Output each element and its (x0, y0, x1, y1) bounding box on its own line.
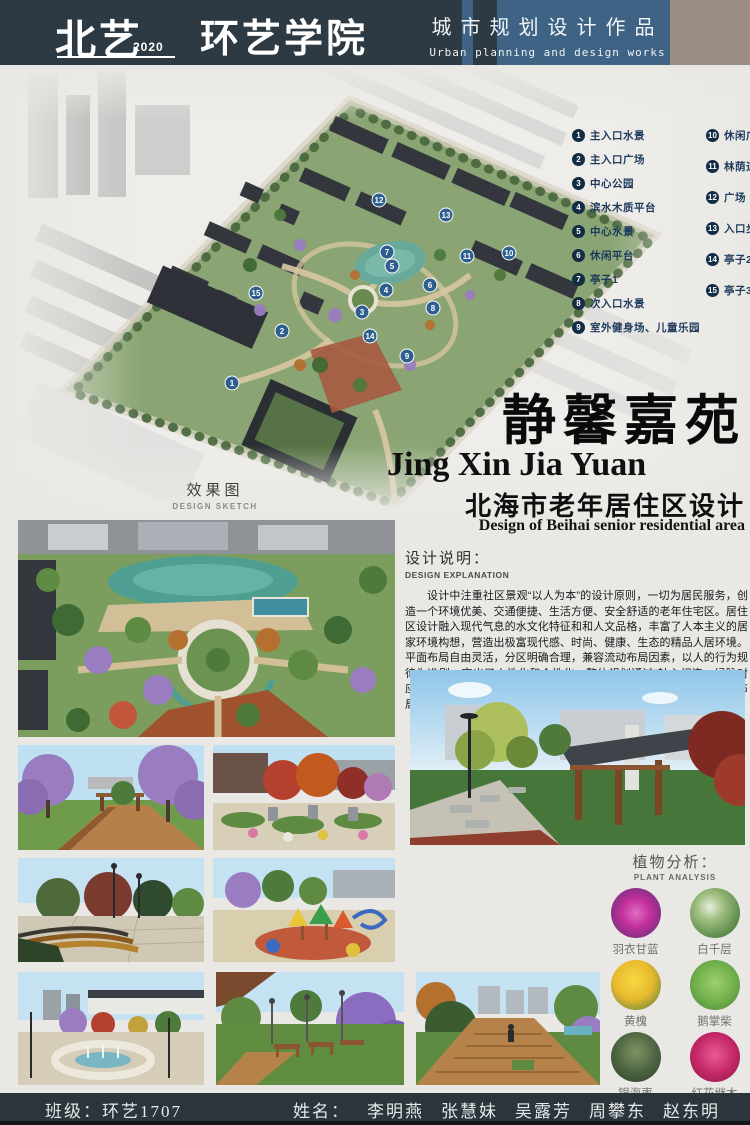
poster-category-en: Urban planning and design works (425, 46, 670, 59)
svg-text:11: 11 (463, 252, 472, 261)
flower-garden-scene-image (213, 745, 395, 850)
svg-text:1: 1 (230, 379, 235, 388)
legend-number-badge: 1 (572, 129, 585, 142)
svg-text:12: 12 (375, 196, 384, 205)
plant-photo-palm (611, 1032, 661, 1082)
legend-item: 4滨水木质平台 (572, 200, 700, 215)
svg-text:15: 15 (252, 289, 261, 298)
names-list: 姓名： 李明燕 张慧妹 吴露芳 周攀东 赵东明 (293, 1097, 720, 1122)
plant-analysis-heading-en: PLANT ANALYSIS (600, 873, 750, 882)
plant-item: 红花继木 (690, 1032, 740, 1101)
svg-text:7: 7 (385, 248, 390, 257)
legend-item: 2主入口广场 (572, 152, 700, 167)
legend-number-badge: 6 (572, 249, 585, 262)
legend-item: 1主入口水景 (572, 128, 700, 143)
pavilion-rendering-image (410, 670, 745, 845)
legend-number-badge: 14 (706, 253, 719, 266)
legend-number-badge: 5 (572, 225, 585, 238)
plant-item: 鹅掌柴 (690, 960, 740, 1029)
lawn-benches-scene-image (216, 972, 404, 1085)
legend-number-badge: 7 (572, 273, 585, 286)
design-explanation-heading-cn: 设计说明： (405, 547, 748, 568)
project-title-cn: 静馨嘉苑 (502, 376, 746, 455)
plan-caption-cn: 效果图 (150, 479, 280, 500)
legend-number-badge: 4 (572, 201, 585, 214)
svg-text:8: 8 (431, 304, 436, 313)
fountain-plaza-scene-image (18, 972, 204, 1085)
terraced-steps-scene-image (18, 858, 204, 962)
legend-item: 13入口步道广场 (706, 221, 750, 236)
project-title-pinyin: Jing Xin Jia Yuan (387, 446, 646, 484)
poster-category-cn: 城市规划设计作品 (425, 11, 670, 40)
plant-photo-loropetalum (690, 1032, 740, 1082)
logo-year: 2020 (133, 40, 164, 54)
plan-legend: 1主入口水景 2主入口广场 3中心公园 4滨水木质平台 5中心水景 6休闲平台 … (572, 128, 750, 335)
plant-analysis-section: 植物分析： PLANT ANALYSIS 羽衣甘蓝 白千层 黄槐 鹅掌柴 银海枣… (600, 851, 750, 1101)
plant-item: 白千层 (690, 888, 740, 957)
plant-analysis-heading-cn: 植物分析： (600, 851, 750, 872)
plant-photo-melaleuca (690, 888, 740, 938)
legend-number-badge: 15 (706, 284, 719, 297)
names-prefix: 姓名： (293, 1097, 350, 1122)
student-name: 李明燕 (367, 1097, 424, 1122)
student-name: 赵东明 (663, 1097, 720, 1122)
svg-text:5: 5 (390, 262, 395, 271)
legend-number-badge: 10 (706, 129, 719, 142)
svg-text:14: 14 (366, 332, 375, 341)
header-title-block: 城市规划设计作品 Urban planning and design works (425, 11, 670, 59)
student-name: 张慧妹 (441, 1097, 498, 1122)
header-tan-panel (670, 0, 750, 65)
legend-number-badge: 3 (572, 177, 585, 190)
plant-photo-huanghuai (611, 960, 661, 1010)
pergola-scene-image (18, 745, 204, 850)
student-name: 周攀东 (589, 1097, 646, 1122)
legend-item: 3中心公园 (572, 176, 700, 191)
legend-number-badge: 13 (706, 222, 719, 235)
boardwalk-scene-image (416, 972, 600, 1085)
svg-text:3: 3 (360, 308, 365, 317)
legend-item: 12广场 (706, 190, 750, 205)
svg-text:9: 9 (405, 352, 410, 361)
plant-item: 黄槐 (611, 960, 661, 1029)
legend-item: 11林荫道 (706, 159, 750, 174)
plant-item: 银海枣 (611, 1032, 661, 1101)
legend-item: 9室外健身场、儿童乐园 (572, 320, 700, 335)
legend-item: 6休闲平台 (572, 248, 700, 263)
plant-photo-schefflera (690, 960, 740, 1010)
legend-item: 8次入口水景 (572, 296, 700, 311)
svg-text:2: 2 (280, 327, 285, 336)
logo-underline (57, 56, 175, 58)
plan-caption-en: DESIGN SKETCH (150, 502, 280, 511)
design-explanation-heading-en: DESIGN EXPLANATION (405, 570, 748, 580)
footer-edge-strip (0, 1121, 750, 1125)
walking-person (508, 1024, 514, 1042)
svg-text:4: 4 (384, 286, 389, 295)
svg-text:10: 10 (505, 249, 514, 258)
plant-photo-kale (611, 888, 661, 938)
svg-text:6: 6 (428, 281, 433, 290)
header-bar: 北艺 2020 环艺学院 城市规划设计作品 Urban planning and… (0, 0, 750, 65)
legend-item: 5中心水景 (572, 224, 700, 239)
legend-number-badge: 12 (706, 191, 719, 204)
plan-caption: 效果图 DESIGN SKETCH (150, 479, 280, 511)
legend-number-badge: 11 (706, 160, 719, 173)
legend-item: 14亭子2、创意廊架 (706, 252, 750, 267)
legend-number-badge: 9 (572, 321, 585, 334)
legend-number-badge: 2 (572, 153, 585, 166)
legend-item: 7亭子1 (572, 272, 700, 287)
legend-item: 15亭子3 (706, 283, 750, 298)
footer-bar: 班级：环艺1707 姓名： 李明燕 张慧妹 吴露芳 周攀东 赵东明 (0, 1093, 750, 1121)
class-label: 班级：环艺1707 (45, 1097, 182, 1122)
plant-item: 羽衣甘蓝 (611, 888, 661, 957)
student-name: 吴露芳 (515, 1097, 572, 1122)
svg-text:13: 13 (442, 211, 451, 220)
legend-number-badge: 8 (572, 297, 585, 310)
school-name: 环艺学院 (200, 8, 368, 64)
aerial-closeup-image (18, 520, 395, 737)
playground-scene-image (213, 858, 395, 962)
legend-item: 10休闲广场 (706, 128, 750, 143)
project-subtitle-en: Design of Beihai senior residential area (479, 517, 745, 535)
